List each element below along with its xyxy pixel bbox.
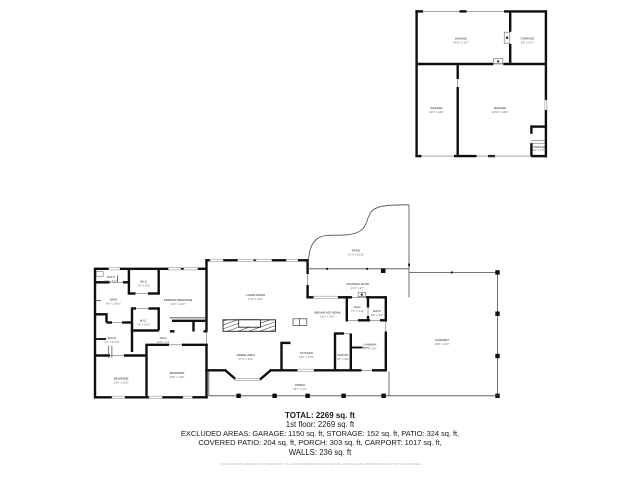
svg-text:GARAGE: GARAGE [430, 106, 442, 110]
svg-text:8'4" x 14'10": 8'4" x 14'10" [106, 303, 121, 306]
svg-text:KITCHEN: KITCHEN [300, 351, 312, 355]
svg-text:BREAKFAST NOOK: BREAKFAST NOOK [314, 311, 340, 315]
svg-text:17'0" x 12'1": 17'0" x 12'1" [238, 358, 253, 361]
svg-text:STORAGE: STORAGE [521, 37, 535, 41]
svg-text:BEDROOM: BEDROOM [114, 377, 129, 381]
svg-text:17'0" x 19'0": 17'0" x 19'0" [248, 298, 263, 301]
svg-text:46'7" x 6'9": 46'7" x 6'9" [293, 388, 307, 391]
svg-text:W.I.C.: W.I.C. [140, 319, 148, 323]
svg-text:23'10" x 24'9": 23'10" x 24'9" [492, 111, 509, 114]
svg-text:GARAGE: GARAGE [455, 37, 467, 41]
svg-text:W.I.C.: W.I.C. [140, 280, 148, 284]
svg-text:9'6" x 10'10": 9'6" x 10'10" [104, 341, 119, 344]
svg-text:HALL: HALL [160, 336, 168, 340]
svg-text:CARPORT: CARPORT [435, 338, 449, 342]
svg-text:27'3" x 11'11": 27'3" x 11'11" [348, 253, 364, 256]
svg-text:8'5" x 5'8": 8'5" x 5'8" [371, 314, 383, 317]
svg-text:30'8" x 33'0": 30'8" x 33'0" [434, 343, 449, 346]
svg-text:5'1" x 7'9": 5'1" x 7'9" [533, 149, 545, 152]
svg-text:9'6" x 13'7": 9'6" x 13'7" [521, 42, 535, 45]
svg-text:HALL: HALL [354, 305, 362, 309]
svg-text:13'4" x 11'5": 13'4" x 11'5" [114, 381, 129, 384]
svg-text:13'6" x 24'9": 13'6" x 24'9" [429, 111, 444, 114]
svg-text:BATH: BATH [108, 336, 116, 340]
svg-text:6'7" x 13'0": 6'7" x 13'0" [363, 347, 377, 350]
svg-text:14'6" x 10'5": 14'6" x 10'5" [299, 356, 314, 359]
svg-text:7'9" x 6'10": 7'9" x 6'10" [137, 323, 151, 326]
svg-text:7'9" x 6'11": 7'9" x 6'11" [137, 284, 150, 287]
svg-text:GARAGE: GARAGE [494, 106, 506, 110]
svg-text:24'10" x 13'7": 24'10" x 13'7" [453, 42, 470, 45]
svg-text:LIVING ROOM: LIVING ROOM [246, 293, 265, 297]
svg-text:BATH: BATH [373, 309, 381, 313]
svg-text:7'5" x 5'11": 7'5" x 5'11" [104, 280, 117, 283]
svg-text:20'9" x 14'0": 20'9" x 14'0" [170, 303, 185, 306]
svg-text:LAUNDRY: LAUNDRY [363, 343, 377, 347]
svg-text:DINING AREA: DINING AREA [237, 353, 255, 357]
svg-text:PANTRY: PANTRY [337, 353, 348, 357]
svg-text:PORCH: PORCH [295, 383, 305, 387]
svg-text:7'6" x 4'11": 7'6" x 4'11" [351, 310, 364, 313]
svg-text:BATH: BATH [110, 298, 118, 302]
svg-text:4'6" x 8'8": 4'6" x 8'8" [337, 358, 349, 361]
svg-text:COVERED PATIO: COVERED PATIO [346, 282, 370, 286]
svg-text:29'8" x 4'1": 29'8" x 4'1" [157, 341, 171, 344]
svg-text:BATH: BATH [107, 275, 115, 279]
svg-text:21'3" x 9'7": 21'3" x 9'7" [351, 287, 365, 290]
svg-text:14'0" x 10'0": 14'0" x 10'0" [320, 315, 335, 318]
svg-text:PRIMARY BEDROOM: PRIMARY BEDROOM [164, 298, 193, 302]
svg-text:16'5" x 14'5": 16'5" x 14'5" [169, 376, 184, 379]
svg-text:BEDROOM: BEDROOM [170, 371, 185, 375]
svg-text:PATIO: PATIO [352, 249, 361, 253]
